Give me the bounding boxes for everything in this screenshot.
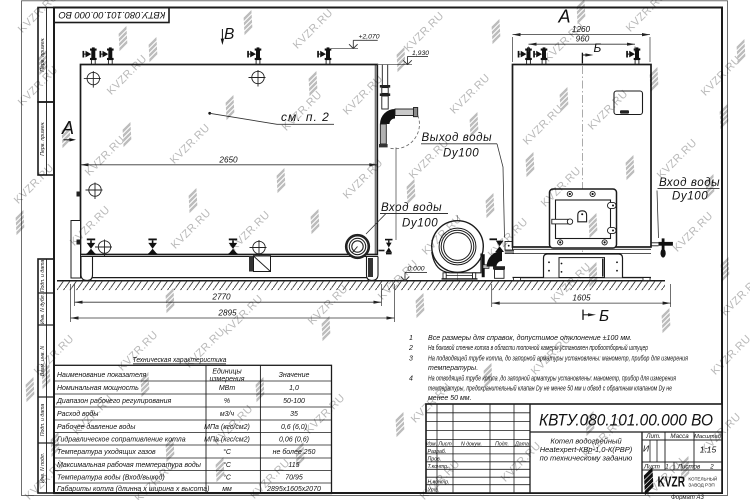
- svg-text:А: А: [558, 7, 571, 27]
- svg-text:70/95: 70/95: [285, 474, 303, 481]
- svg-text:Гидравлическое сопративление к: Гидравлическое сопративление котла: [57, 435, 186, 443]
- svg-text:3: 3: [409, 355, 413, 362]
- svg-text:температуры.: температуры.: [428, 365, 478, 372]
- svg-text:%: %: [224, 398, 230, 405]
- svg-text:1605: 1605: [572, 293, 591, 302]
- svg-text:Подп.: Подп.: [495, 441, 509, 447]
- svg-text:2770: 2770: [211, 293, 231, 302]
- svg-text:1: 1: [409, 335, 413, 342]
- svg-text:Б: Б: [599, 308, 609, 325]
- svg-text:2: 2: [709, 463, 714, 470]
- svg-text:Лист: Лист: [437, 441, 452, 447]
- svg-text:Dy100: Dy100: [672, 191, 708, 203]
- svg-text:Единицы: Единицы: [212, 368, 242, 376]
- svg-text:И: И: [643, 444, 650, 454]
- svg-text:Наименование показателя: Наименование показателя: [57, 372, 147, 379]
- svg-text:Техническая характеристика: Техническая характеристика: [133, 355, 227, 364]
- svg-text:2650: 2650: [218, 155, 238, 164]
- svg-text:35: 35: [290, 411, 298, 418]
- svg-text:1,930: 1,930: [412, 50, 429, 57]
- svg-text:ЗАВОД РЭП: ЗАВОД РЭП: [688, 482, 714, 487]
- svg-text:50-100: 50-100: [283, 398, 305, 405]
- svg-text:Номинальная мощность: Номинальная мощность: [57, 385, 139, 392]
- svg-text:Разраб.: Разраб.: [428, 449, 447, 455]
- svg-text:Габариты котла (длинна х ширин: Габариты котла (длинна х ширина х высота…: [57, 485, 210, 493]
- svg-text:Масса: Масса: [670, 433, 689, 440]
- svg-text:N докум.: N докум.: [461, 441, 482, 447]
- svg-text:Б: Б: [594, 41, 602, 55]
- svg-text:Дата: Дата: [514, 441, 529, 447]
- svg-text:Подп. и дата: Подп. и дата: [40, 404, 46, 437]
- svg-text:1,0: 1,0: [289, 385, 299, 392]
- svg-text:Температура уходящих газов: Температура уходящих газов: [57, 448, 156, 456]
- svg-text:Лит.: Лит.: [645, 433, 661, 440]
- svg-text:КВТУ.080.101.00.000 ВО: КВТУ.080.101.00.000 ВО: [539, 412, 713, 430]
- svg-text:Подп. и дата: Подп. и дата: [40, 260, 46, 293]
- svg-text:°С: °С: [223, 448, 232, 456]
- svg-text:Перв. примен.: Перв. примен.: [40, 121, 46, 155]
- svg-text:0,06 (0,6): 0,06 (0,6): [279, 436, 309, 443]
- svg-text:Выход воды: Выход воды: [422, 132, 493, 144]
- svg-text:Инв. N дубл.: Инв. N дубл.: [40, 294, 46, 324]
- svg-text:Максимальная рабочая температу: Максимальная рабочая температура воды: [57, 461, 202, 469]
- svg-text:В: В: [224, 26, 234, 43]
- svg-text:4: 4: [409, 375, 413, 382]
- svg-text:КВТУ.080.101.00.000 ВО: КВТУ.080.101.00.000 ВО: [59, 10, 166, 20]
- svg-text:Рабочее давление воды: Рабочее давление воды: [57, 423, 136, 431]
- svg-text:Dy100: Dy100: [443, 148, 479, 160]
- svg-text:°С: °С: [223, 461, 232, 469]
- svg-text:2: 2: [408, 345, 413, 352]
- svg-text:На отводящей трубе котла ,до з: На отводящей трубе котла ,до запорной ар…: [428, 374, 676, 382]
- svg-text:МВт: МВт: [219, 385, 236, 392]
- svg-text:2895х1605х2070: 2895х1605х2070: [266, 486, 321, 493]
- svg-text:Формат А3: Формат А3: [671, 495, 704, 500]
- svg-text:Все размеры для справок, допус: Все размеры для справок, допустимое откл…: [428, 334, 632, 342]
- svg-text:+2,070: +2,070: [359, 34, 380, 41]
- svg-text:не более 250: не более 250: [273, 448, 316, 456]
- svg-text:Значение: Значение: [279, 372, 310, 379]
- svg-text:температуры, предохранительный: температуры, предохранительный клапан Dу…: [428, 384, 672, 392]
- svg-text:На боковой стенке котла в обла: На боковой стенке котла в области топочн…: [428, 344, 648, 352]
- svg-text:Изм.: Изм.: [426, 441, 437, 447]
- svg-text:КОТЕЛЬНЫЙ: КОТЕЛЬНЫЙ: [688, 475, 717, 482]
- svg-text:Вход воды: Вход воды: [381, 202, 442, 214]
- svg-text:Dy100: Dy100: [402, 217, 438, 229]
- svg-text:измерения: измерения: [209, 376, 244, 383]
- svg-text:Пров.: Пров.: [428, 457, 442, 463]
- svg-text:мм: мм: [222, 486, 232, 493]
- svg-text:°С: °С: [223, 473, 232, 481]
